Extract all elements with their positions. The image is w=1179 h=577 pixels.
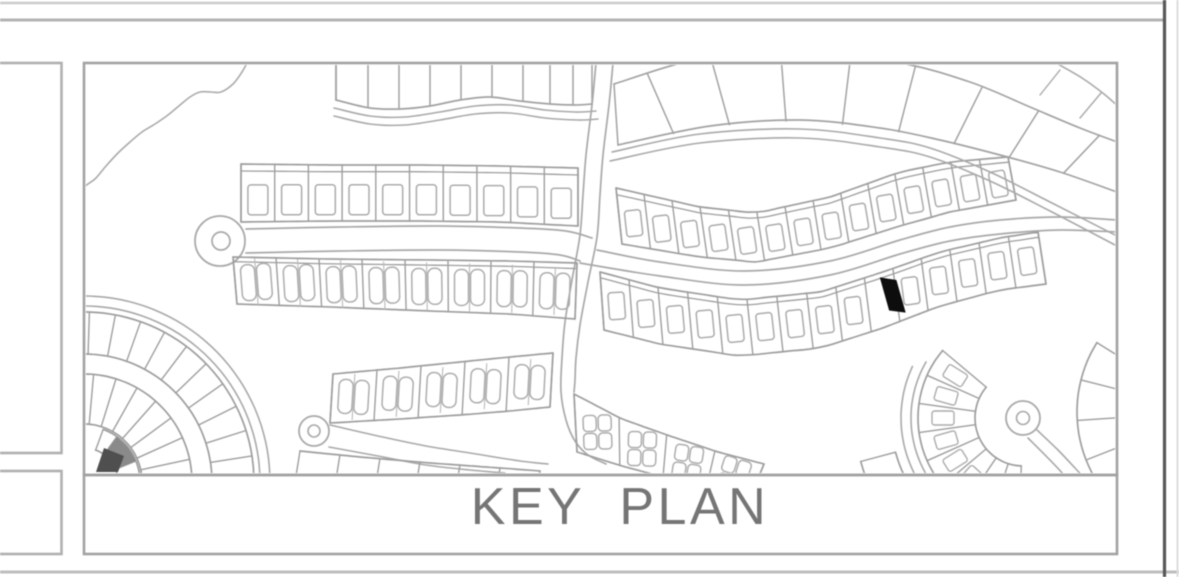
svg-text:KEY PLAN: KEY PLAN [471,478,769,536]
